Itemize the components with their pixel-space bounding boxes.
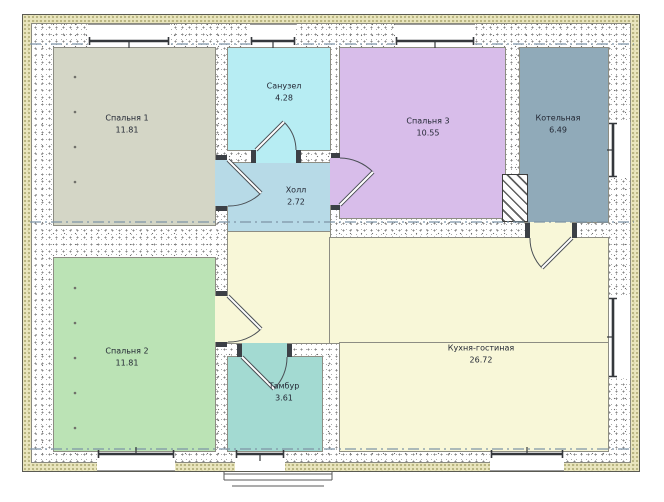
room-area: 26.72 — [448, 355, 514, 367]
room-label-bedroom-2: Спальня 2 11.81 — [105, 346, 148, 371]
door-opening-bedroom-2 — [215, 296, 228, 342]
door-opening-bedroom-3 — [330, 158, 340, 205]
room-name: Тамбур — [269, 381, 300, 393]
room-area: 4.28 — [267, 93, 302, 105]
room-kitchen-living — [228, 232, 330, 343]
chimney-shaft — [502, 174, 528, 222]
room-kitchen-living — [330, 238, 608, 343]
room-area: 11.81 — [105, 125, 148, 137]
room-area: 10.55 — [406, 128, 449, 140]
door-opening-boiler — [530, 222, 572, 238]
floor-plan: Спальня 1 11.81 Санузел 4.28 Холл 2.72 С… — [0, 0, 664, 502]
room-area: 3.61 — [269, 393, 300, 405]
room-hall — [228, 163, 330, 232]
door-opening-vestibule — [242, 343, 287, 357]
door-opening-bedroom-1 — [215, 160, 228, 206]
door-opening-bathroom — [256, 150, 296, 163]
entrance-steps — [224, 472, 332, 486]
room-name: Спальня 3 — [406, 116, 449, 128]
room-name: Санузел — [267, 81, 302, 93]
room-name: Кухня-гостиная — [448, 343, 514, 355]
room-label-bedroom-1: Спальня 1 11.81 — [105, 113, 148, 138]
room-label-kitchen-living: Кухня-гостиная 26.72 — [448, 343, 514, 368]
room-label-vestibule: Тамбур 3.61 — [269, 381, 300, 406]
room-area: 6.49 — [536, 125, 581, 137]
room-name: Спальня 2 — [105, 346, 148, 358]
room-label-hall: Холл 2.72 — [286, 185, 307, 210]
room-label-boiler: Котельная 6.49 — [536, 113, 581, 138]
room-name: Холл — [286, 185, 307, 197]
room-area: 11.81 — [105, 358, 148, 370]
room-label-bathroom: Санузел 4.28 — [267, 81, 302, 106]
room-label-bedroom-3: Спальня 3 10.55 — [406, 116, 449, 141]
room-name: Спальня 1 — [105, 113, 148, 125]
room-name: Котельная — [536, 113, 581, 125]
room-area: 2.72 — [286, 197, 307, 209]
